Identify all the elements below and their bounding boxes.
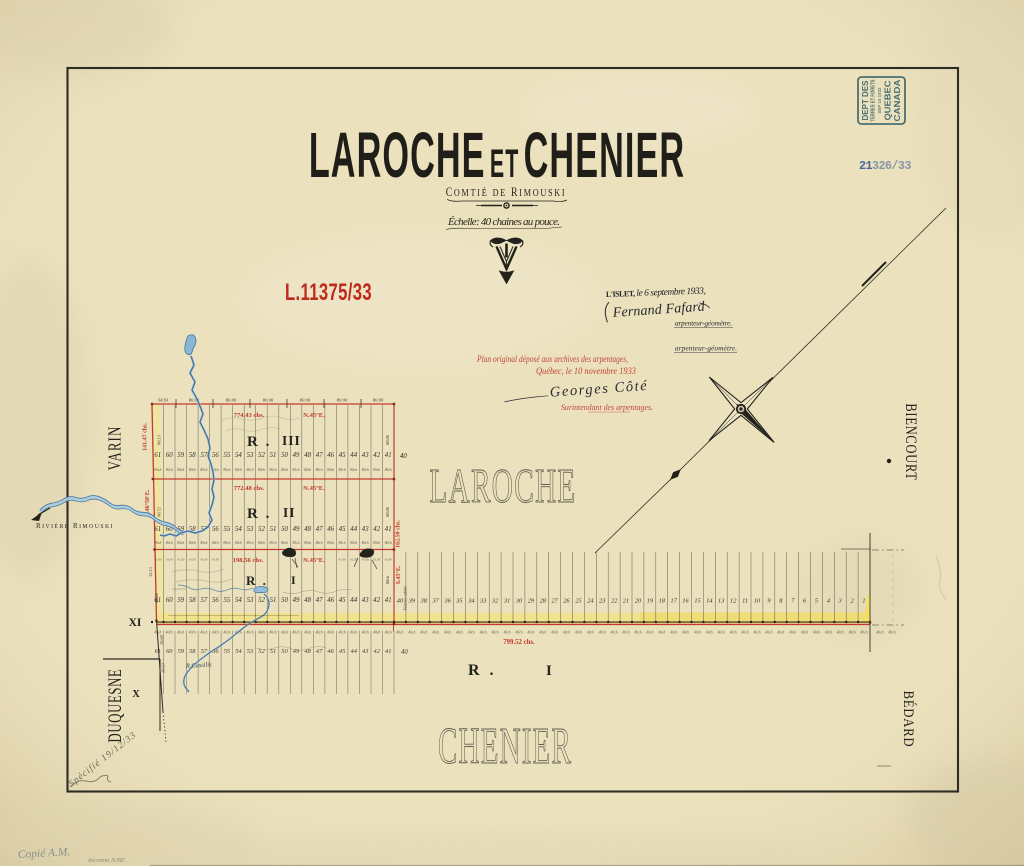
svg-text:1: 1 xyxy=(862,598,865,605)
svg-text:41.00: 41.00 xyxy=(373,558,380,562)
svg-text:41: 41 xyxy=(385,526,392,533)
svg-text:40ch: 40ch xyxy=(362,631,369,635)
svg-text:40: 40 xyxy=(397,598,404,605)
svg-text:R .: R . xyxy=(247,434,271,450)
svg-text:80ch: 80ch xyxy=(293,541,300,545)
svg-text:80ch: 80ch xyxy=(177,541,184,545)
svg-text:80ch: 80ch xyxy=(327,541,334,545)
svg-text:46: 46 xyxy=(327,648,334,655)
svg-text:80ch: 80ch xyxy=(223,541,230,545)
svg-text:40ch: 40ch xyxy=(611,631,618,635)
svg-text:40ch: 40ch xyxy=(658,631,665,635)
svg-text:42: 42 xyxy=(373,452,380,459)
svg-text:12: 12 xyxy=(730,598,737,605)
svg-text:40ch: 40ch xyxy=(456,631,463,635)
svg-text:59: 59 xyxy=(178,648,185,655)
svg-text:38: 38 xyxy=(420,598,428,605)
svg-text:41.00: 41.00 xyxy=(177,558,184,562)
svg-text:LAROCHE: LAROCHE xyxy=(429,458,576,513)
svg-text:53: 53 xyxy=(247,526,254,533)
svg-text:40ch: 40ch xyxy=(551,631,558,635)
svg-text:arpenteur-géomètre.: arpenteur-géomètre. xyxy=(675,320,732,328)
svg-text:N.45°E.: N.45°E. xyxy=(303,557,325,564)
svg-text:XI: XI xyxy=(129,617,142,629)
svg-text:40ch: 40ch xyxy=(801,631,808,635)
svg-text:Inconnu N/BE: Inconnu N/BE xyxy=(87,857,125,864)
svg-text:34: 34 xyxy=(467,598,474,605)
svg-text:40ch: 40ch xyxy=(350,631,357,635)
svg-text:50: 50 xyxy=(281,452,288,459)
svg-text:BÉDARD: BÉDARD xyxy=(901,691,918,748)
svg-text:24: 24 xyxy=(587,598,593,605)
svg-text:5: 5 xyxy=(815,598,818,605)
svg-text:57: 57 xyxy=(201,597,208,604)
svg-text:COMTIÉ DE RIMOUSKI: COMTIÉ DE RIMOUSKI xyxy=(446,186,567,199)
svg-text:61: 61 xyxy=(154,597,161,604)
svg-text:25: 25 xyxy=(575,598,581,605)
svg-text:80ch: 80ch xyxy=(247,541,254,545)
svg-text:33: 33 xyxy=(479,598,486,605)
svg-text:80ch: 80ch xyxy=(373,541,380,545)
svg-text:54.93: 54.93 xyxy=(158,398,169,403)
svg-text:40ch: 40ch xyxy=(706,631,713,635)
svg-text:40ch: 40ch xyxy=(270,631,277,635)
svg-text:45: 45 xyxy=(339,648,345,655)
svg-text:40ch: 40ch xyxy=(281,631,288,635)
svg-text:40ch: 40ch xyxy=(327,631,334,635)
svg-text:40ch: 40ch xyxy=(385,631,392,635)
svg-text:58: 58 xyxy=(189,452,196,459)
svg-text:40ch: 40ch xyxy=(258,631,265,635)
svg-text:80ch: 80ch xyxy=(270,541,277,545)
svg-text:43: 43 xyxy=(362,526,369,533)
svg-text:80ch: 80ch xyxy=(235,468,242,472)
svg-text:80ch: 80ch xyxy=(223,468,230,472)
svg-text:CHENIER: CHENIER xyxy=(438,717,572,775)
svg-text:10: 10 xyxy=(754,598,761,605)
svg-text:I: I xyxy=(546,663,552,679)
svg-text:47: 47 xyxy=(316,452,323,459)
svg-text:41.00: 41.00 xyxy=(200,558,207,562)
svg-text:40ch: 40ch xyxy=(599,631,606,635)
svg-text:80ch: 80ch xyxy=(304,468,311,472)
svg-text:198.56 chs.: 198.56 chs. xyxy=(233,557,264,564)
svg-text:40ch: 40ch xyxy=(765,631,772,635)
svg-text:40ch: 40ch xyxy=(527,631,534,635)
svg-text:40ch: 40ch xyxy=(670,631,677,635)
svg-text:41.00: 41.00 xyxy=(154,558,161,562)
svg-text:58: 58 xyxy=(189,648,196,655)
svg-text:Surintendant des arpentages.: Surintendant des arpentages. xyxy=(561,403,653,412)
svg-text:Falaise sablée: Falaise sablée xyxy=(403,586,408,611)
svg-text:60: 60 xyxy=(166,648,173,655)
svg-text:47: 47 xyxy=(316,597,323,604)
svg-text:40ch: 40ch xyxy=(730,631,737,635)
svg-text:80ch: 80ch xyxy=(362,468,369,472)
svg-text:60: 60 xyxy=(166,452,173,459)
svg-text:50: 50 xyxy=(281,526,288,533)
svg-text:14: 14 xyxy=(706,598,712,605)
svg-text:44: 44 xyxy=(350,452,357,459)
svg-text:80.08: 80.08 xyxy=(385,434,390,444)
svg-text:80ch: 80ch xyxy=(270,468,277,472)
svg-text:80ch: 80ch xyxy=(327,468,334,472)
svg-text:54: 54 xyxy=(235,452,242,459)
svg-text:III: III xyxy=(282,433,301,448)
svg-text:41.00: 41.00 xyxy=(339,558,346,562)
svg-text:40ch: 40ch xyxy=(889,631,896,635)
svg-text:50: 50 xyxy=(281,597,288,604)
svg-text:40ch: 40ch xyxy=(777,631,784,635)
svg-text:40ch: 40ch xyxy=(316,631,323,635)
svg-text:37: 37 xyxy=(431,598,439,605)
svg-text:31: 31 xyxy=(503,598,510,605)
svg-text:40ch: 40ch xyxy=(247,631,254,635)
svg-text:51: 51 xyxy=(270,597,277,604)
svg-text:40ch: 40ch xyxy=(420,631,427,635)
svg-text:40ch: 40ch xyxy=(293,631,300,635)
svg-text:Québec, le 10 novembre 1933: Québec, le 10 novembre 1933 xyxy=(536,366,636,376)
svg-text:40ch: 40ch xyxy=(825,631,832,635)
svg-text:52: 52 xyxy=(258,526,265,533)
svg-text:35: 35 xyxy=(455,598,462,605)
svg-text:43: 43 xyxy=(362,648,368,655)
svg-text:26: 26 xyxy=(563,598,570,605)
svg-text:42: 42 xyxy=(373,597,380,604)
svg-text:80.00: 80.00 xyxy=(337,398,348,403)
svg-text:44: 44 xyxy=(350,526,357,533)
svg-text:40ch: 40ch xyxy=(504,631,511,635)
svg-text:51: 51 xyxy=(270,452,277,459)
svg-text:49: 49 xyxy=(293,526,300,533)
svg-text:CANADA: CANADA xyxy=(892,80,902,122)
svg-text:80ch: 80ch xyxy=(154,468,161,472)
svg-text:56: 56 xyxy=(212,526,219,533)
svg-text:22: 22 xyxy=(611,598,618,605)
svg-text:53: 53 xyxy=(247,597,254,604)
svg-text:80.00: 80.00 xyxy=(373,398,384,403)
svg-text:80ch: 80ch xyxy=(189,468,196,472)
svg-text:40ch: 40ch xyxy=(587,631,594,635)
svg-text:48: 48 xyxy=(304,452,311,459)
svg-text:55: 55 xyxy=(224,526,231,533)
svg-text:40: 40 xyxy=(400,453,407,460)
svg-text:41.00: 41.00 xyxy=(166,558,173,562)
svg-text:53: 53 xyxy=(247,648,253,655)
svg-text:40ch: 40ch xyxy=(575,631,582,635)
svg-text:QUEBEC: QUEBEC xyxy=(883,81,893,121)
svg-text:35.13: 35.13 xyxy=(148,567,153,576)
svg-text:80ch: 80ch xyxy=(339,468,346,472)
svg-text:40ch: 40ch xyxy=(849,631,856,635)
svg-text:41.00: 41.00 xyxy=(189,558,196,562)
svg-text:80ch: 80ch xyxy=(166,541,173,545)
svg-text:11: 11 xyxy=(742,598,748,605)
svg-text:40ch: 40ch xyxy=(861,631,868,635)
svg-text:49: 49 xyxy=(293,452,300,459)
svg-text:80ch: 80ch xyxy=(385,468,392,472)
svg-text:18: 18 xyxy=(659,598,666,605)
svg-text:DUQUESNE: DUQUESNE xyxy=(106,669,126,743)
svg-text:80ch: 80ch xyxy=(200,468,207,472)
svg-text:80ch: 80ch xyxy=(362,541,369,545)
svg-text:40ch: 40ch xyxy=(200,631,207,635)
svg-text:48: 48 xyxy=(304,526,311,533)
svg-text:80ch: 80ch xyxy=(385,576,390,584)
svg-text:39: 39 xyxy=(408,598,416,605)
svg-text:80ch: 80ch xyxy=(166,468,173,472)
svg-text:52: 52 xyxy=(258,597,265,604)
svg-text:40ch: 40ch xyxy=(754,631,761,635)
svg-text:II: II xyxy=(283,505,296,520)
svg-text:X: X xyxy=(132,689,140,700)
svg-text:40ch: 40ch xyxy=(516,631,523,635)
svg-text:799.52 chs.: 799.52 chs. xyxy=(503,639,535,646)
svg-text:45: 45 xyxy=(339,526,346,533)
svg-text:80ch: 80ch xyxy=(200,541,207,545)
svg-text:54: 54 xyxy=(235,648,242,655)
svg-text:61: 61 xyxy=(154,526,161,533)
svg-text:40ch: 40ch xyxy=(373,631,380,635)
svg-text:L.11375/33: L.11375/33 xyxy=(285,279,372,306)
svg-text:23: 23 xyxy=(599,598,605,605)
svg-text:43: 43 xyxy=(362,452,369,459)
svg-text:20: 20 xyxy=(635,598,642,605)
svg-text:41: 41 xyxy=(385,597,392,604)
svg-text:17: 17 xyxy=(671,598,678,605)
svg-text:80.00: 80.00 xyxy=(226,398,237,403)
svg-text:21: 21 xyxy=(623,598,629,605)
svg-text:41.00: 41.00 xyxy=(362,558,369,562)
svg-text:80.72: 80.72 xyxy=(157,507,162,516)
svg-text:40ch: 40ch xyxy=(694,631,701,635)
svg-text:80ch: 80ch xyxy=(316,468,323,472)
svg-text:80ch: 80ch xyxy=(177,468,184,472)
svg-text:45: 45 xyxy=(339,452,346,459)
svg-text:40ch: 40ch xyxy=(444,631,451,635)
svg-text:56: 56 xyxy=(212,597,219,604)
svg-text:DEPT DES: DEPT DES xyxy=(861,80,870,121)
svg-text:61: 61 xyxy=(155,648,161,655)
svg-text:52: 52 xyxy=(258,452,265,459)
svg-text:40ch: 40ch xyxy=(468,631,475,635)
svg-text:40ch: 40ch xyxy=(189,631,196,635)
svg-text:TERRES ET FORETS: TERRES ET FORETS xyxy=(871,79,877,122)
svg-text:47: 47 xyxy=(316,648,323,655)
svg-text:47: 47 xyxy=(316,526,323,533)
svg-text:80ch: 80ch xyxy=(235,541,242,545)
svg-text:80ch: 80ch xyxy=(339,541,346,545)
svg-text:80ch: 80ch xyxy=(293,468,300,472)
svg-text:40ch: 40ch xyxy=(212,631,219,635)
svg-text:80ch: 80ch xyxy=(350,468,357,472)
svg-text:46: 46 xyxy=(327,597,334,604)
svg-text:44: 44 xyxy=(350,597,357,604)
svg-text:40: 40 xyxy=(401,649,408,656)
svg-text:3: 3 xyxy=(838,598,842,605)
svg-text:41: 41 xyxy=(385,452,392,459)
svg-text:60: 60 xyxy=(166,597,173,604)
svg-text:13: 13 xyxy=(718,598,724,605)
svg-text:61: 61 xyxy=(154,452,161,459)
svg-text:56: 56 xyxy=(212,452,219,459)
svg-text:54: 54 xyxy=(235,597,242,604)
svg-text:80ch: 80ch xyxy=(316,541,323,545)
svg-text:40ch: 40ch xyxy=(563,631,570,635)
svg-text:SEP 15 1933: SEP 15 1933 xyxy=(877,87,882,114)
svg-text:55: 55 xyxy=(224,452,231,459)
svg-text:41.00: 41.00 xyxy=(385,558,392,562)
svg-text:42: 42 xyxy=(373,526,380,533)
svg-text:R .: R . xyxy=(468,662,497,679)
svg-text:59: 59 xyxy=(177,597,184,604)
svg-text:80ch: 80ch xyxy=(212,541,219,545)
svg-text:40ch: 40ch xyxy=(408,631,415,635)
svg-text:40ch: 40ch xyxy=(396,631,403,635)
svg-text:54: 54 xyxy=(235,526,242,533)
svg-text:162.50 chs.: 162.50 chs. xyxy=(396,520,402,548)
svg-text:41: 41 xyxy=(385,648,391,655)
svg-text:40ch: 40ch xyxy=(718,631,725,635)
svg-text:40ch: 40ch xyxy=(646,631,653,635)
svg-text:46: 46 xyxy=(327,526,334,533)
svg-text:40ch: 40ch xyxy=(682,631,689,635)
svg-text:80ch: 80ch xyxy=(304,541,311,545)
svg-text:BIENCOURT: BIENCOURT xyxy=(902,403,920,480)
svg-text:80.00: 80.00 xyxy=(263,398,274,403)
svg-text:80ch: 80ch xyxy=(350,541,357,545)
svg-text:40ch: 40ch xyxy=(492,631,499,635)
svg-text:80.08: 80.08 xyxy=(385,506,390,516)
svg-text:58: 58 xyxy=(189,597,196,604)
svg-text:80ch: 80ch xyxy=(247,468,254,472)
svg-text:VARIN: VARIN xyxy=(106,426,126,471)
svg-text:80ch: 80ch xyxy=(258,468,265,472)
svg-text:42: 42 xyxy=(374,648,381,655)
svg-text:R .: R . xyxy=(246,573,268,588)
svg-text:40ch: 40ch xyxy=(480,631,487,635)
svg-text:80ch: 80ch xyxy=(281,541,288,545)
svg-text:80ch: 80ch xyxy=(385,541,392,545)
svg-text:26.63: 26.63 xyxy=(161,663,166,672)
svg-text:40ch: 40ch xyxy=(339,631,346,635)
svg-text:44: 44 xyxy=(351,648,358,655)
svg-text:40ch: 40ch xyxy=(304,631,311,635)
svg-text:40ch: 40ch xyxy=(623,631,630,635)
svg-text:19: 19 xyxy=(647,598,654,605)
svg-text:80ch: 80ch xyxy=(281,468,288,472)
svg-text:141.47 chs.: 141.47 chs. xyxy=(143,423,149,451)
svg-text:40ch: 40ch xyxy=(432,631,439,635)
svg-text:49: 49 xyxy=(293,597,300,604)
svg-text:30: 30 xyxy=(515,598,523,605)
svg-text:40ch: 40ch xyxy=(635,631,642,635)
svg-text:N.45°E.: N.45°E. xyxy=(303,412,325,419)
svg-text:80ch: 80ch xyxy=(154,541,161,545)
svg-text:R .: R . xyxy=(247,506,271,522)
svg-text:772.48 chs.: 772.48 chs. xyxy=(234,485,265,492)
svg-text:4: 4 xyxy=(827,598,830,605)
svg-text:Échelle: 40 chaines au pouce.: Échelle: 40 chaines au pouce. xyxy=(447,216,560,228)
svg-text:RIVIÈRE RIMOUSKI: RIVIÈRE RIMOUSKI xyxy=(36,521,114,530)
svg-text:29: 29 xyxy=(528,598,535,605)
svg-text:40ch: 40ch xyxy=(813,631,820,635)
svg-text:45: 45 xyxy=(339,597,346,604)
svg-text:43: 43 xyxy=(362,597,369,604)
svg-text:49: 49 xyxy=(293,648,300,655)
svg-text:53: 53 xyxy=(247,452,254,459)
svg-text:28: 28 xyxy=(540,598,547,605)
svg-text:40ch: 40ch xyxy=(539,631,546,635)
svg-text:40ch: 40ch xyxy=(223,631,230,635)
svg-text:41.00: 41.00 xyxy=(212,558,219,562)
svg-text:27: 27 xyxy=(551,598,558,605)
svg-text:Plan original déposé aux archi: Plan original déposé aux archives des ar… xyxy=(476,354,628,364)
svg-text:46: 46 xyxy=(327,452,334,459)
svg-text:55: 55 xyxy=(224,648,230,655)
svg-text:16: 16 xyxy=(682,598,689,605)
svg-text:59: 59 xyxy=(177,452,184,459)
svg-text:80.13: 80.13 xyxy=(157,435,162,444)
svg-text:arpenteur-géomètre.: arpenteur-géomètre. xyxy=(675,345,737,353)
svg-text:15: 15 xyxy=(694,598,700,605)
svg-text:40ch: 40ch xyxy=(177,631,184,635)
svg-text:S.45°E.: S.45°E. xyxy=(395,565,402,584)
svg-text:40ch: 40ch xyxy=(837,631,844,635)
svg-text:80ch: 80ch xyxy=(189,541,196,545)
svg-text:36: 36 xyxy=(443,598,451,605)
svg-text:50: 50 xyxy=(281,648,288,655)
svg-text:40ch: 40ch xyxy=(877,631,884,635)
svg-text:I: I xyxy=(291,573,296,587)
svg-text:40ch: 40ch xyxy=(742,631,749,635)
svg-text:51: 51 xyxy=(270,526,277,533)
svg-text:36.60: 36.60 xyxy=(159,634,164,644)
svg-text:40ch: 40ch xyxy=(789,631,796,635)
svg-text:80ch: 80ch xyxy=(258,541,265,545)
svg-text:40ch: 40ch xyxy=(166,631,173,635)
svg-text:55: 55 xyxy=(224,597,231,604)
svg-text:32: 32 xyxy=(491,598,499,605)
svg-text:21326/33: 21326/33 xyxy=(859,159,911,173)
svg-text:N.45°E.: N.45°E. xyxy=(303,485,325,492)
svg-text:80.00: 80.00 xyxy=(300,398,311,403)
svg-text:80ch: 80ch xyxy=(373,468,380,472)
svg-text:48: 48 xyxy=(304,597,311,604)
